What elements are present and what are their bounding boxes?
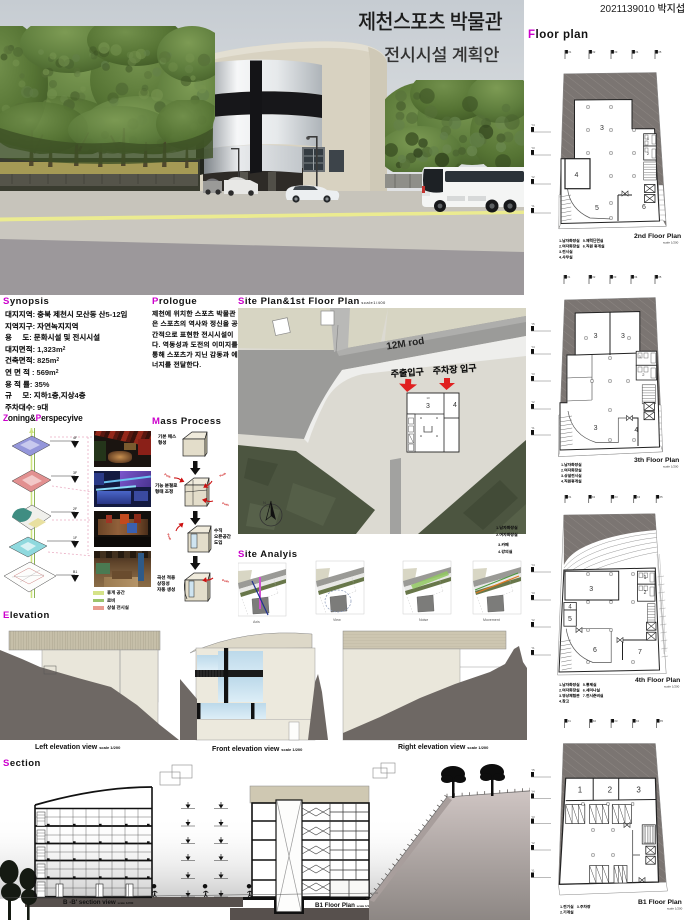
svg-text:Y1: Y1 [531,646,535,650]
svg-text:1.남자화장실: 1.남자화장실 [561,462,582,467]
svg-text:2.기계실: 2.기계실 [560,910,574,915]
svg-text:Y2: Y2 [531,841,535,845]
svg-text:Y3: Y3 [531,815,535,819]
svg-text:4: 4 [634,427,638,434]
svg-text:3th Floor Plan: 3th Floor Plan [634,457,679,464]
svg-text:X4: X4 [635,50,639,54]
svg-text:scale 1/200: scale 1/200 [667,907,683,911]
svg-text:3.전시실: 3.전시실 [559,249,573,254]
svg-text:기본 매스: 기본 매스 [158,434,177,439]
svg-text:Y4: Y4 [531,123,535,127]
svg-text:3.상설전시실: 3.상설전시실 [561,473,582,478]
svg-text:scale 1/200: scale 1/200 [664,685,680,689]
svg-text:Y1: Y1 [531,869,535,873]
svg-text:2: 2 [644,590,647,596]
svg-text:4.직원휴게실: 4.직원휴게실 [561,479,582,484]
svg-text:Push: Push [166,533,172,541]
svg-text:X1: X1 [568,719,572,723]
svg-text:2.여자화장실: 2.여자화장실 [561,468,582,473]
svg-text:1F: 1F [73,536,77,540]
svg-text:X4: X4 [637,495,641,499]
svg-text:4th Floor Plan: 4th Floor Plan [635,677,680,684]
svg-text:Y4: Y4 [531,345,535,349]
svg-text:X2: X2 [592,50,596,54]
svg-text:X5: X5 [660,719,664,723]
svg-text:형태 조정: 형태 조정 [155,489,173,494]
svg-text:Y5: Y5 [531,322,535,326]
svg-text:3F: 3F [73,471,77,475]
svg-text:X1: X1 [568,495,572,499]
svg-text:도입: 도입 [214,540,222,545]
svg-text:X4: X4 [634,275,638,279]
svg-text:Push: Push [219,471,227,478]
svg-text:1.남자화장실 5.체력단련실: 1.남자화장실 5.체력단련실 [559,238,604,243]
svg-text:X3: X3 [614,50,618,54]
svg-text:6: 6 [642,204,646,211]
svg-text:X2: X2 [592,275,596,279]
svg-text:10: 10 [426,396,430,400]
svg-text:2.여자화장실 6.세미나실: 2.여자화장실 6.세미나실 [559,688,600,693]
svg-text:scale 1/200: scale 1/200 [663,465,679,469]
svg-text:2nd Floor Plan: 2nd Floor Plan [634,233,681,240]
svg-text:Y4: Y4 [531,563,535,567]
svg-text:B -B′ section view scale 1/20: B -B′ section view scale 1/200 [63,899,134,906]
svg-text:1.남자화장실 5.통제실: 1.남자화장실 5.통제실 [559,682,597,687]
svg-text:4: 4 [575,172,579,179]
svg-text:1: 1 [578,786,583,795]
svg-text:X5: X5 [659,495,663,499]
svg-text:2.여자화장실 6.직원 휴게실: 2.여자화장실 6.직원 휴게실 [559,244,605,249]
svg-text:2F: 2F [73,507,77,511]
svg-text:Y4: Y4 [531,790,535,794]
svg-text:3: 3 [426,403,430,410]
svg-text:X3: X3 [614,719,618,723]
svg-text:X5: X5 [658,50,662,54]
svg-text:7: 7 [638,649,642,656]
svg-text:3.영상체험관 7.전시준비실: 3.영상체험관 7.전시준비실 [559,693,604,698]
svg-text:5: 5 [595,205,599,212]
svg-text:Y5: Y5 [531,768,535,772]
svg-text:4.사무실: 4.사무실 [559,255,573,260]
svg-text:3: 3 [600,125,604,132]
svg-text:Push: Push [164,472,172,479]
svg-text:Y1: Y1 [531,426,535,430]
svg-text:2: 2 [608,786,613,795]
svg-text:X1: X1 [568,50,572,54]
svg-text:B1 Floor Plan scale 1/100: B1 Floor Plan scale 1/100 [315,902,373,909]
svg-text:X3: X3 [613,275,617,279]
svg-text:곡선 적용: 곡선 적용 [157,575,176,580]
svg-text:Push: Push [222,501,230,507]
svg-text:Y2: Y2 [531,175,535,179]
svg-text:상징성: 상징성 [157,581,170,586]
svg-text:3: 3 [621,333,625,340]
svg-text:수직: 수직 [214,528,222,533]
svg-text:B1 Floor Plan: B1 Floor Plan [638,899,682,906]
svg-text:Y3: Y3 [531,591,535,595]
svg-text:Y1: Y1 [531,204,535,208]
svg-text:5: 5 [568,616,572,623]
svg-text:Y3: Y3 [531,146,535,150]
svg-text:자동 생성: 자동 생성 [156,587,175,592]
svg-text:B1: B1 [73,570,77,574]
svg-text:X5: X5 [658,275,662,279]
svg-text:4F: 4F [73,436,77,440]
svg-text:3: 3 [589,586,593,593]
svg-text:Y2: Y2 [531,400,535,404]
svg-text:1: 1 [644,575,647,581]
svg-text:Y3: Y3 [531,372,535,376]
svg-text:오픈공간: 오픈공간 [214,534,232,539]
svg-text:기능 분절로: 기능 분절로 [155,483,178,488]
svg-text:1.전기실 3.주차장: 1.전기실 3.주차장 [560,904,591,909]
svg-text:scale 1/200: scale 1/200 [663,241,679,245]
svg-text:Y2: Y2 [531,618,535,622]
svg-text:3: 3 [636,786,641,795]
svg-text:N: N [263,500,266,505]
svg-text:X2: X2 [592,495,596,499]
svg-text:3: 3 [594,425,598,432]
svg-text:3: 3 [594,333,598,340]
svg-text:X3: X3 [614,495,618,499]
svg-text:형성: 형성 [158,440,166,445]
svg-text:4: 4 [453,402,457,409]
svg-text:X4: X4 [636,719,640,723]
svg-text:4.창고: 4.창고 [559,699,570,704]
svg-text:6: 6 [593,647,597,654]
svg-text:X1: X1 [567,275,571,279]
svg-text:X2: X2 [593,719,597,723]
svg-text:Push: Push [222,578,230,584]
